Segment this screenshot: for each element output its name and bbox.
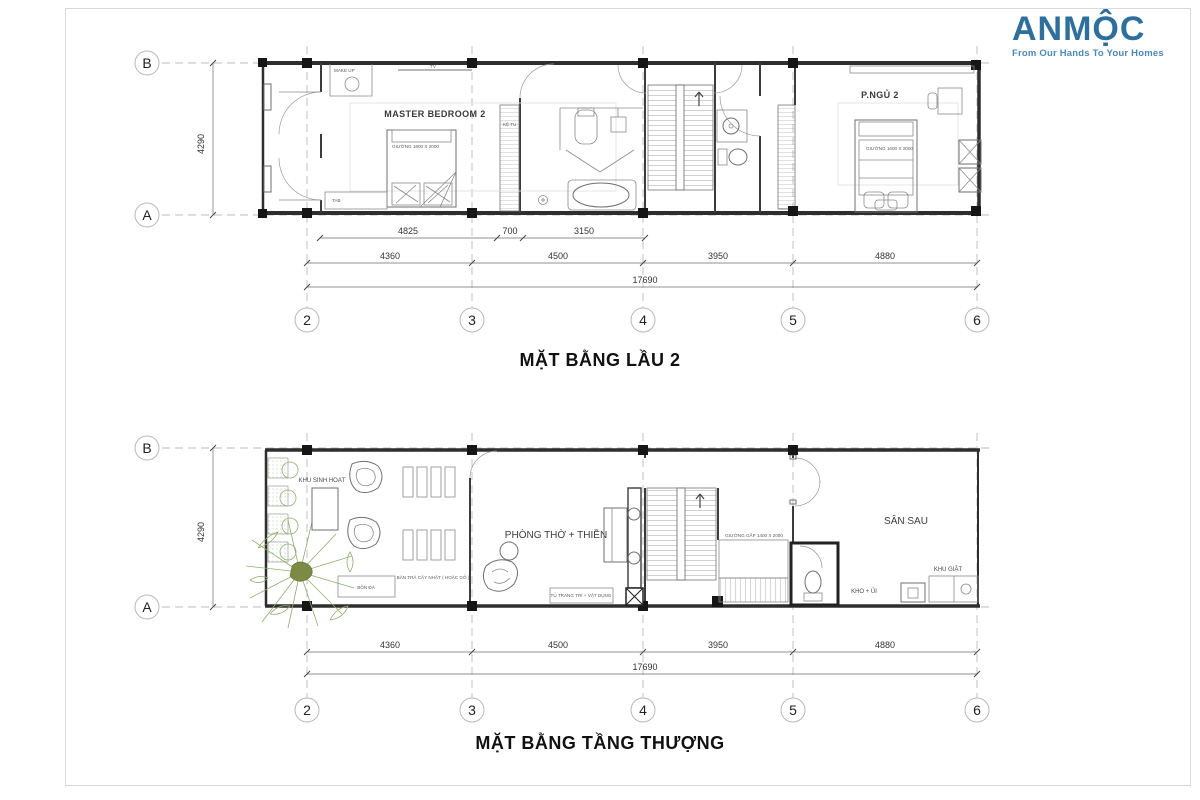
dim-4825: 4825 — [398, 226, 418, 236]
plan2-row-b: B — [142, 440, 151, 456]
plan1-row-bubbles: B A 4290 — [135, 51, 216, 227]
plan1-col-6: 6 — [973, 312, 981, 328]
tu-trang-tri-label: TỦ TRANG TRÍ + VẬT DỤNG — [551, 592, 612, 598]
dim1-4880: 4880 — [875, 251, 895, 261]
plan1-height-dim: 4290 — [196, 134, 206, 154]
bedroom2-furniture: P.NGỦ 2 GIƯỜNG 1600 X 2000 — [838, 66, 981, 212]
tree — [246, 520, 354, 628]
stairs2 — [647, 488, 716, 580]
ketu-label: KỆ TỦ — [503, 120, 516, 127]
slat-benches — [403, 467, 455, 560]
san-sau: SÂN SAU KHU GIẶT KHO + ỦI — [851, 514, 978, 602]
dim1-3950: 3950 — [708, 251, 728, 261]
dim2-total: 17690 — [632, 662, 657, 672]
tab-label: TAB — [332, 198, 341, 203]
plan2-col-3: 3 — [468, 702, 476, 718]
plan2-col-2: 2 — [303, 702, 311, 718]
master-bedroom-label: MASTER BEDROOM 2 — [384, 109, 485, 119]
dim-700: 700 — [502, 226, 517, 236]
plan1-col-5: 5 — [789, 312, 797, 328]
foldbed-room: GIƯỜNG GẤP 1400 X 2000 — [719, 532, 788, 602]
giuong-gap-label: GIƯỜNG GẤP 1400 X 2000 — [725, 532, 783, 538]
plan1-col-4: 4 — [639, 312, 647, 328]
plan1-title: MẶT BẰNG LẦU 2 — [0, 350, 1200, 371]
plan2-row-a: A — [142, 599, 152, 615]
drawing-sheet: ANMỘC From Our Hands To Your Homes — [0, 0, 1200, 800]
plan1-col-2: 2 — [303, 312, 311, 328]
plan1-row-b: B — [142, 55, 151, 71]
phong-tho-label: PHÒNG THỜ + THIỀN — [505, 528, 607, 541]
plan1-walls — [262, 63, 980, 213]
bedroom2-label: P.NGỦ 2 — [861, 89, 899, 100]
ban-tra-label: BÀN TRÀ CÂY NHẬT ( HOẶC GỖ ) — [397, 574, 470, 580]
plan1-col-bubbles: 2 3 4 5 6 — [295, 308, 989, 332]
plan1-dimensions: 4825 700 3150 4360 4500 3950 4880 17690 — [304, 226, 980, 290]
plan1-row-a: A — [142, 207, 152, 223]
dim2-4360: 4360 — [380, 640, 400, 650]
stairs1 — [648, 85, 713, 190]
plan2-col-6: 6 — [973, 702, 981, 718]
wc2-furniture — [717, 110, 747, 165]
plan2-col-bubbles: 2 3 4 5 6 — [295, 698, 989, 722]
dim2-4500: 4500 — [548, 640, 568, 650]
dim2-3950: 3950 — [708, 640, 728, 650]
dim1-4360: 4360 — [380, 251, 400, 261]
plan1-col-3: 3 — [468, 312, 476, 328]
bon-da-label: BỒN ĐÁ — [357, 584, 376, 590]
plan1-columns — [258, 58, 981, 218]
plan2-col-5: 5 — [789, 702, 797, 718]
makeup-label: MAKE UP — [334, 68, 355, 73]
plan2-col-4: 4 — [639, 702, 647, 718]
master-bedroom-furniture: MAKE UP TV MASTER BEDROOM 2 GIƯỜNG 1800 … — [325, 64, 616, 209]
worship-room: PHÒNG THỜ + THIỀN TỦ TRANG TRÍ + VẬT DỤN… — [483, 488, 643, 605]
san-sau-label: SÂN SAU — [884, 514, 928, 527]
wc1-furniture — [539, 108, 644, 210]
plan2-height-dim: 4290 — [196, 522, 206, 542]
plan2-row-bubbles: B A 4290 — [135, 436, 216, 619]
khu-giat-label: KHU GIẶT — [934, 566, 963, 573]
dim1-total: 17690 — [632, 275, 657, 285]
wc3 — [791, 543, 838, 605]
master-bed-label: GIƯỜNG 1800 X 2000 — [392, 143, 439, 149]
plan2-walls — [265, 450, 980, 606]
dim-3150: 3150 — [574, 226, 594, 236]
tv-label: TV — [430, 64, 437, 69]
bed2-label: GIƯỜNG 1600 X 2000 — [866, 145, 913, 151]
plan2-title: MẶT BẰNG TẦNG THƯỢNG — [0, 733, 1200, 754]
plan2-dimensions: 4360 4500 3950 4880 17690 — [304, 640, 980, 677]
khu-sinh-hoat-label: KHU SINH HOẠT — [298, 478, 345, 484]
kho-ui-label: KHO + ỦI — [851, 588, 877, 595]
terrace-furniture: KHU SINH HOẠT BỒN ĐÁ BÀN TRÀ CÂY NHẬT ( … — [246, 458, 470, 628]
floor-plans-drawing: B A 4290 — [0, 0, 1200, 800]
dim2-4880: 4880 — [875, 640, 895, 650]
dim1-4500: 4500 — [548, 251, 568, 261]
